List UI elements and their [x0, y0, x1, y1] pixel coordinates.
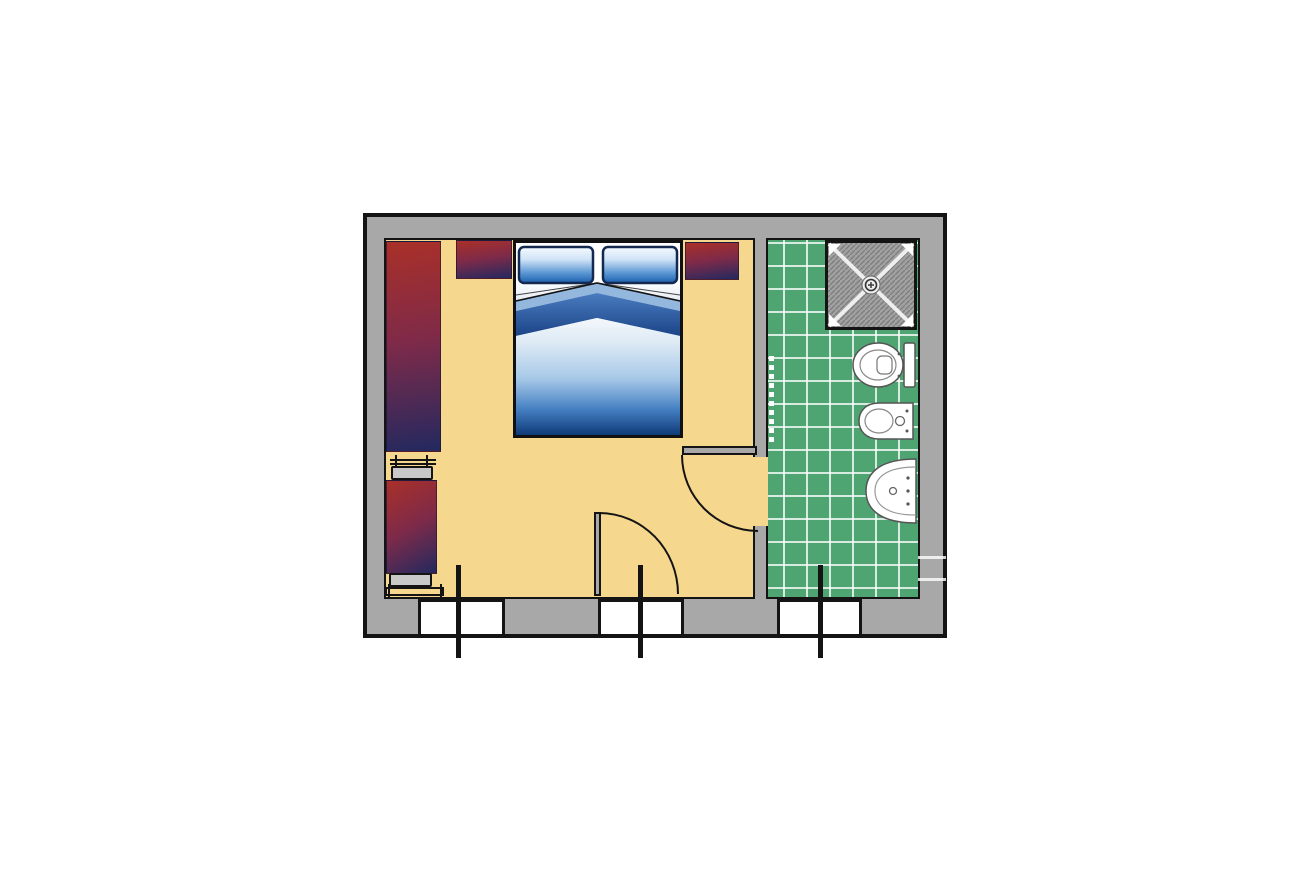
nightstand-right-icon	[685, 242, 739, 280]
window-centerline	[638, 565, 643, 658]
bathroom-door-leaf	[682, 446, 757, 455]
floor-plan-canvas	[0, 0, 1310, 875]
bidet-icon	[857, 400, 917, 442]
luggage-bench-top-icon	[391, 466, 433, 480]
double-bed-icon	[513, 240, 683, 438]
wardrobe-icon	[386, 241, 441, 452]
entry-door-leaf	[594, 512, 601, 596]
toilet-icon	[851, 341, 917, 389]
bench-rail-tick	[440, 584, 442, 597]
bench-rail-tick	[388, 584, 390, 597]
window-centerline	[456, 565, 461, 658]
window-centerline	[818, 565, 823, 658]
luggage-bench-bottom-icon	[389, 573, 432, 587]
luggage-bench-bottom-frame	[385, 587, 444, 596]
bed-linens-graphic	[516, 243, 680, 435]
bedroom-window-left	[418, 599, 505, 637]
tile-grout-overflow-line	[918, 578, 946, 581]
shower-tray-icon	[825, 240, 917, 330]
armchair-daybed-icon	[386, 480, 437, 574]
towel-rail-icon	[769, 356, 774, 442]
washbasin-icon	[862, 456, 918, 526]
nightstand-left-icon	[456, 240, 512, 279]
tile-grout-overflow-line	[918, 556, 946, 559]
